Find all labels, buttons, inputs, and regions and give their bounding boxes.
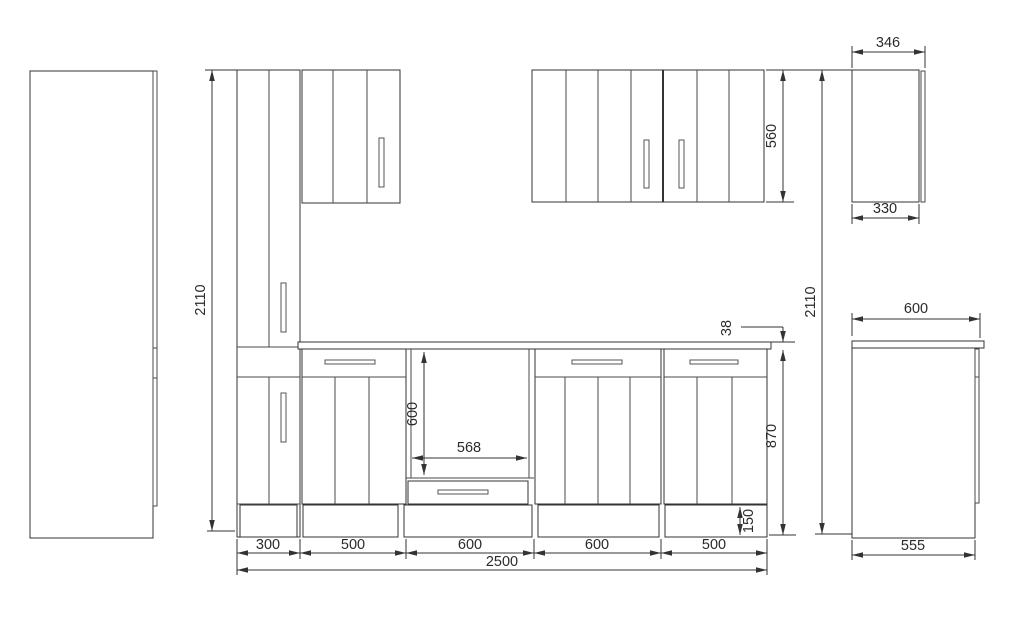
dim-total-width: 2500 <box>237 554 767 570</box>
base-cabinet-600 <box>535 349 661 504</box>
dim-label-segment-5: 500 <box>702 537 726 553</box>
dim-label-wall-cabinet-height: 560 <box>764 124 780 148</box>
plinth-row <box>240 505 767 537</box>
dim-wall-side-depth-bottom: 330 <box>852 201 919 224</box>
dim-wall-cabinet-height: 560 <box>764 70 794 202</box>
door-handle <box>644 140 649 188</box>
tall-cabinet-front <box>237 70 300 537</box>
technical-drawing-canvas: 2110 560 <box>0 0 1024 628</box>
dim-wall-side-depth-top: 346 <box>852 35 925 68</box>
dim-label-segment-3: 600 <box>458 537 482 553</box>
dim-label-base-side-depth-bottom: 555 <box>901 538 925 554</box>
door-handle <box>379 138 384 187</box>
door-handle <box>281 393 286 442</box>
tall-cabinet-side-view <box>30 71 157 538</box>
oven-niche: 600 568 <box>405 349 534 504</box>
drawer-handle <box>690 360 738 364</box>
dim-label-worktop-thickness: 38 <box>719 320 735 336</box>
wall-cabinet-side-view: 346 330 <box>852 35 925 224</box>
wall-cabinet-left <box>302 70 400 203</box>
worktop <box>298 342 771 349</box>
drawer-handle <box>438 490 488 494</box>
dim-label-segment-2: 500 <box>341 537 365 553</box>
dim-base-side-depth-bottom: 555 <box>852 538 975 560</box>
dim-label-segment-1: 300 <box>256 537 280 553</box>
dim-label-base-side-depth-top: 600 <box>904 301 928 317</box>
wall-cabinets-right <box>532 70 764 202</box>
base-cabinet-side-view: 600 555 <box>852 301 984 560</box>
dim-label-plinth-height: 150 <box>741 509 757 533</box>
dim-label-wall-side-depth-bottom: 330 <box>873 201 897 217</box>
door-handle <box>679 140 684 188</box>
base-cabinet-500-left <box>302 349 406 504</box>
dim-oven-niche-height: 600 <box>405 352 424 475</box>
dim-label-oven-niche-height: 600 <box>405 402 421 426</box>
dim-base-side-depth-top: 600 <box>852 301 980 338</box>
drawer-handle <box>325 360 375 364</box>
drawer-handle <box>572 360 622 364</box>
dim-worktop-thickness: 38 <box>719 320 795 342</box>
door-handle <box>281 283 286 332</box>
dim-label-oven-niche-width: 568 <box>457 440 481 456</box>
kitchen-elevation-drawing: 2110 560 <box>0 0 1024 628</box>
dim-label-total-width: 2500 <box>486 554 518 570</box>
base-cabinet-500-right <box>664 349 767 504</box>
dim-base-height: 870 <box>764 350 796 535</box>
dim-label-total-height-right: 2110 <box>803 286 819 317</box>
dim-oven-niche-width: 568 <box>412 440 527 458</box>
dim-label-wall-side-depth-top: 346 <box>876 35 900 51</box>
dim-label-base-height: 870 <box>764 424 780 448</box>
dim-total-height-left: 2110 <box>193 70 237 531</box>
dim-plinth-height: 150 <box>740 507 757 535</box>
dim-label-total-height-left: 2110 <box>193 284 209 315</box>
dim-label-segment-4: 600 <box>585 537 609 553</box>
